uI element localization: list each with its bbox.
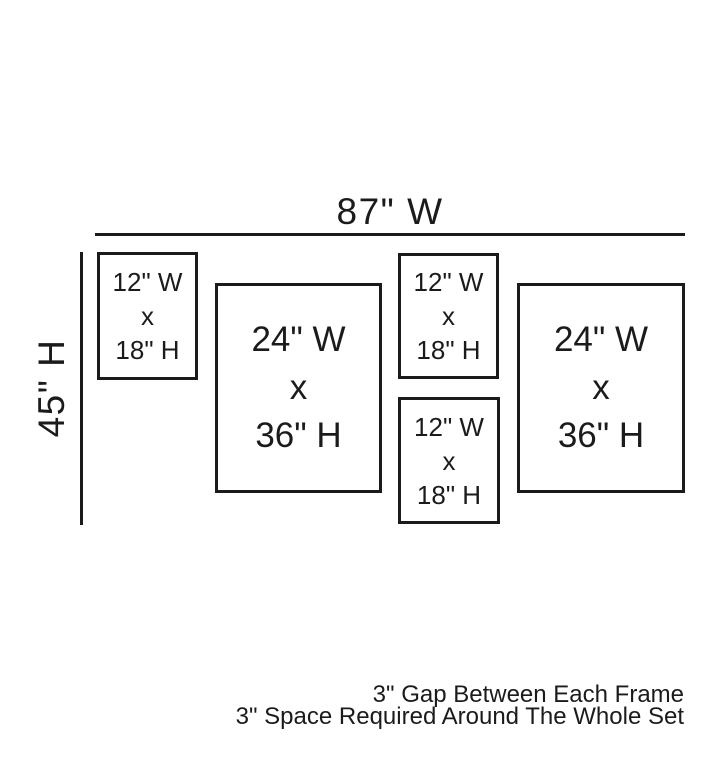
frame-height-label: 18" H xyxy=(115,333,179,367)
frame-width-label: 12" W xyxy=(414,265,484,299)
small-frame-middle-bottom: 12" W x 18" H xyxy=(398,397,500,524)
gallery-wall-layout-diagram: 87" W 45" H 12" W x 18" H 24" W x 36" H … xyxy=(0,0,720,778)
frame-width-label: 12" W xyxy=(414,410,484,444)
frame-width-label: 24" W xyxy=(251,316,345,364)
frame-x-separator: x xyxy=(443,444,456,478)
total-height-label: 45" H xyxy=(31,339,73,438)
surround-space-note: 3" Space Required Around The Whole Set xyxy=(236,706,684,728)
frame-x-separator: x xyxy=(141,299,154,333)
spacing-notes: 3" Gap Between Each Frame 3" Space Requi… xyxy=(236,684,684,728)
frame-height-label: 36" H xyxy=(558,412,644,460)
total-width-label: 87" W xyxy=(95,192,685,232)
small-frame-top-left: 12" W x 18" H xyxy=(97,252,198,380)
large-frame-right: 24" W x 36" H xyxy=(517,283,685,493)
frame-x-separator: x xyxy=(290,364,308,412)
frame-height-label: 18" H xyxy=(417,478,481,512)
large-frame-left: 24" W x 36" H xyxy=(215,283,382,493)
frame-height-label: 18" H xyxy=(416,333,480,367)
height-dimension-line xyxy=(80,252,83,525)
frame-x-separator: x xyxy=(442,299,455,333)
frame-width-label: 12" W xyxy=(113,265,183,299)
frame-width-label: 24" W xyxy=(554,316,648,364)
small-frame-middle-top: 12" W x 18" H xyxy=(398,253,499,379)
frame-height-label: 36" H xyxy=(255,412,341,460)
frame-x-separator: x xyxy=(592,364,610,412)
width-dimension-line xyxy=(95,233,685,236)
